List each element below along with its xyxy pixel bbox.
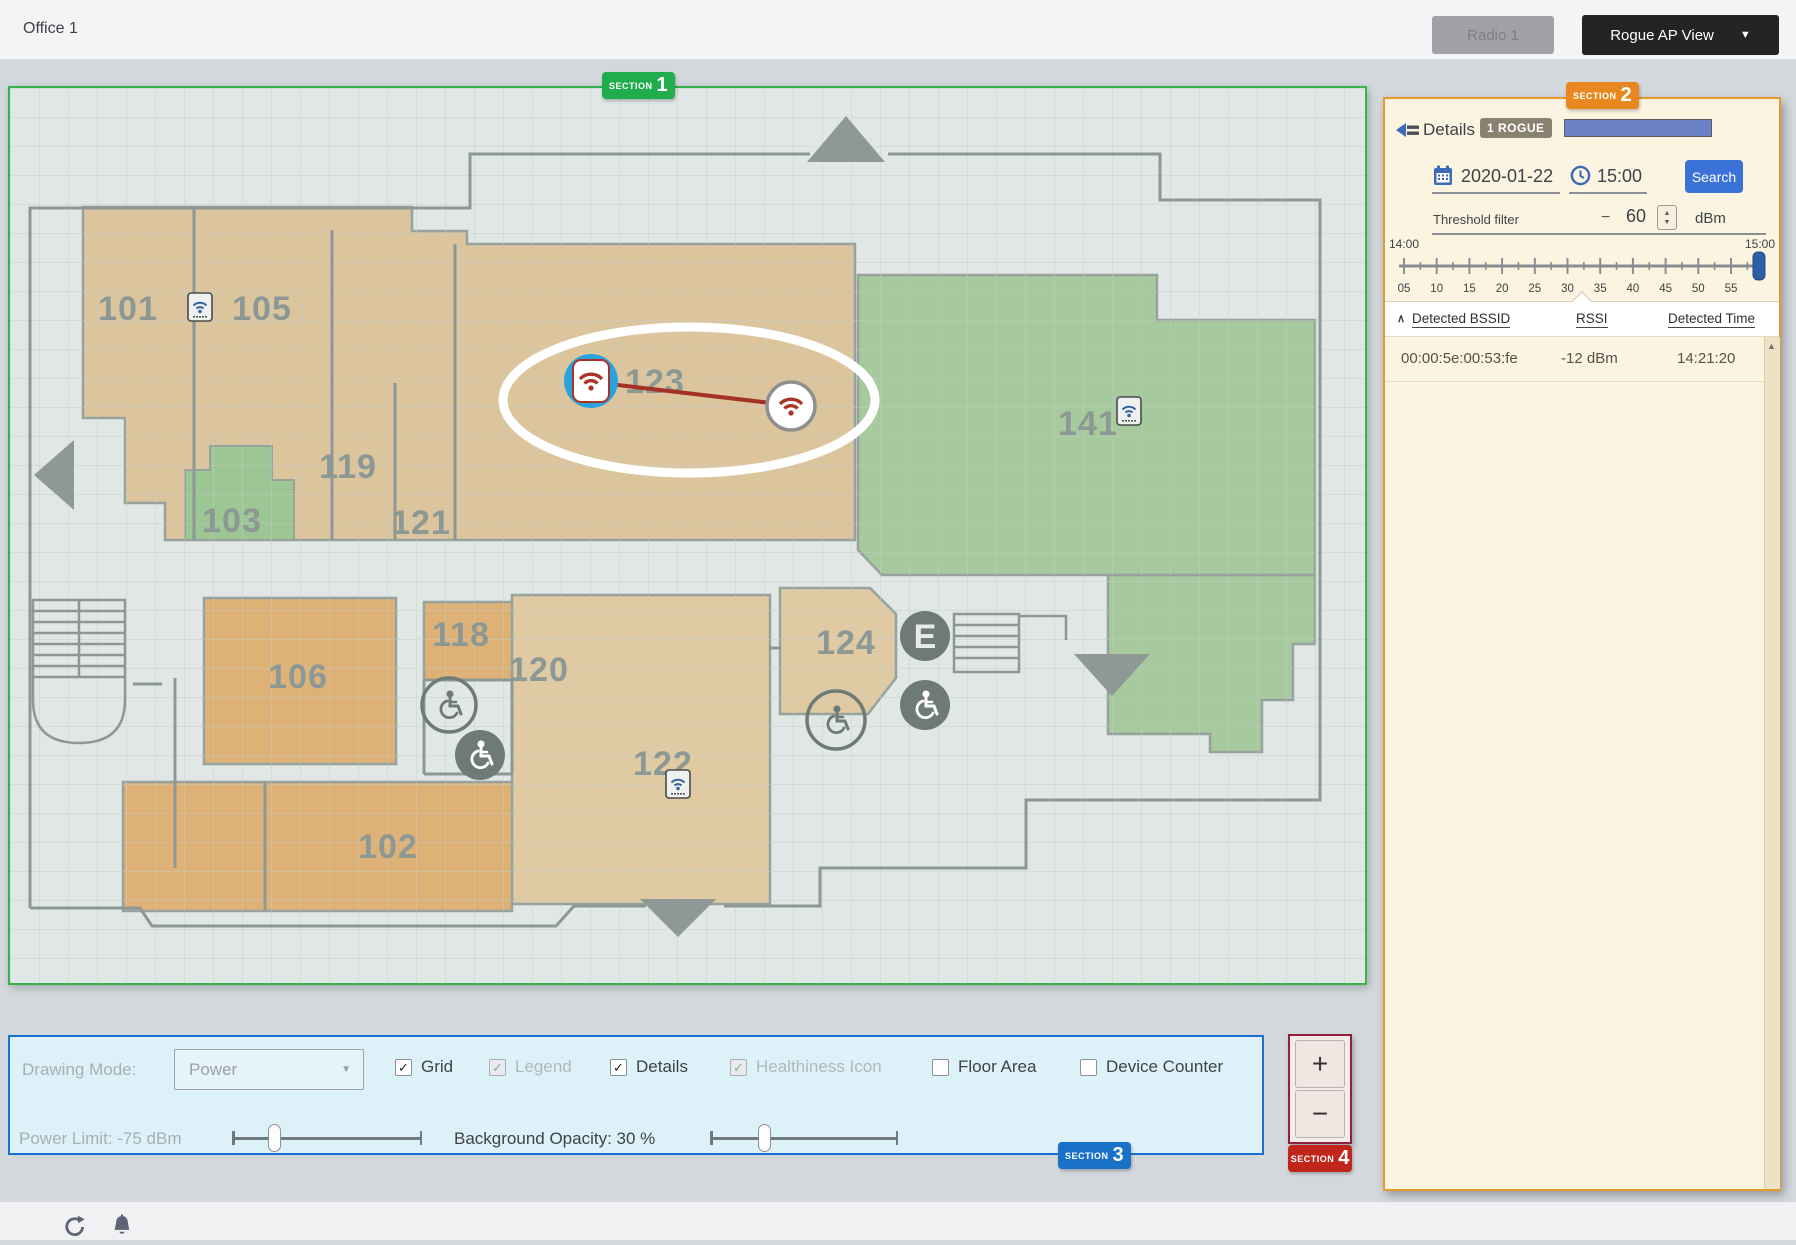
drawing-mode-value: Power: [189, 1060, 237, 1080]
room-label-124: 124: [816, 624, 876, 662]
checkbox-details[interactable]: ✓Details: [610, 1057, 688, 1077]
scroll-up-icon[interactable]: ▲: [1767, 341, 1776, 351]
rssi-cell: -12 dBm: [1561, 350, 1618, 367]
refresh-icon[interactable]: [62, 1214, 88, 1245]
time-field[interactable]: 15:00: [1597, 166, 1642, 187]
room-label-121: 121: [391, 504, 451, 542]
bell-icon[interactable]: [110, 1214, 134, 1245]
checkbox-device-counter[interactable]: Device Counter: [1080, 1057, 1223, 1077]
timeline-tick-label: 05: [1398, 283, 1411, 295]
section-3-badge: SECTION 3: [1058, 1142, 1131, 1169]
timeline-tick-label: 45: [1659, 283, 1672, 295]
view-mode-label: Rogue AP View: [1610, 27, 1714, 44]
checkbox-label: Floor Area: [958, 1057, 1036, 1077]
room-label-123: 123: [625, 363, 685, 401]
checkbox-label: Grid: [421, 1057, 453, 1077]
chevron-down-icon: ▼: [1740, 29, 1751, 41]
checkbox-label: Legend: [515, 1057, 572, 1077]
room-label-119: 119: [319, 448, 377, 486]
details-title: Details: [1423, 120, 1475, 140]
time-cell: 14:21:20: [1677, 350, 1735, 367]
search-button[interactable]: Search: [1685, 160, 1743, 193]
column-detected-bssid[interactable]: Detected BSSID: [1412, 311, 1510, 328]
section-2-badge: SECTION 2: [1566, 82, 1639, 109]
checkbox-box[interactable]: ✓: [730, 1059, 747, 1076]
footer-bar: [0, 1202, 1796, 1240]
background-opacity-label: Background Opacity: 30 %: [454, 1129, 655, 1149]
list-scrollbar[interactable]: ▲: [1764, 337, 1780, 1189]
wheelchair-icon: [900, 680, 950, 730]
rogue-ap-icon[interactable]: [767, 382, 815, 430]
timeline-end-label: 15:00: [1745, 237, 1775, 251]
checkbox-box[interactable]: ✓: [610, 1059, 627, 1076]
zoom-out-button[interactable]: −: [1295, 1090, 1345, 1138]
background-opacity-slider[interactable]: [710, 1130, 898, 1146]
room-label-120: 120: [509, 651, 569, 689]
section-1-badge: SECTION 1: [602, 72, 675, 99]
clock-icon: [1570, 165, 1591, 191]
zoom-in-button[interactable]: +: [1295, 1040, 1345, 1088]
view-mode-dropdown[interactable]: Rogue AP View ▼: [1582, 15, 1779, 55]
table-row[interactable]: 00:00:5e:00:53:fe-12 dBm14:21:20: [1385, 337, 1764, 382]
date-underline: [1432, 192, 1560, 194]
power-limit-label: Power Limit: -75 dBm: [19, 1129, 182, 1149]
checkbox-grid[interactable]: ✓Grid: [395, 1057, 453, 1077]
date-field[interactable]: 2020-01-22: [1461, 166, 1553, 187]
checkbox-label: Details: [636, 1057, 688, 1077]
timeline-tick-label: 30: [1561, 283, 1574, 295]
ap-icon[interactable]: [1117, 397, 1141, 425]
power-limit-slider-handle[interactable]: [268, 1124, 281, 1152]
drawing-mode-select[interactable]: Power ▼: [174, 1049, 364, 1090]
threshold-underline: [1432, 233, 1766, 235]
room-label-106: 106: [268, 658, 328, 696]
svg-text:E: E: [914, 618, 937, 656]
rogue-count-badge: 1 ROGUE: [1480, 118, 1552, 138]
threshold-minus-sign: −: [1601, 209, 1610, 227]
timeline-slider-handle[interactable]: [1753, 252, 1765, 280]
drawing-mode-label: Drawing Mode:: [22, 1060, 136, 1080]
checkbox-healthiness-icon[interactable]: ✓Healthiness Icon: [730, 1057, 882, 1077]
checkbox-box[interactable]: ✓: [489, 1059, 506, 1076]
rogue-ap-list: 00:00:5e:00:53:fe-12 dBm14:21:20: [1385, 337, 1764, 382]
ap-icon[interactable]: [188, 293, 212, 321]
threshold-filter-label: Threshold filter: [1433, 212, 1519, 227]
time-range-slider[interactable]: 14:0015:000510152025303540455055: [1387, 236, 1779, 300]
timeline-tick-label: 25: [1528, 283, 1541, 295]
timeline-tick-label: 55: [1725, 283, 1738, 295]
checkbox-box[interactable]: [1080, 1059, 1097, 1076]
threshold-unit: dBm: [1695, 210, 1726, 227]
rogue-progress-bar: [1564, 119, 1712, 137]
room-label-102: 102: [358, 828, 418, 866]
checkbox-label: Device Counter: [1106, 1057, 1223, 1077]
room-label-101: 101: [98, 290, 158, 328]
column-detected-time[interactable]: Detected Time: [1668, 311, 1755, 328]
bssid-cell: 00:00:5e:00:53:fe: [1401, 350, 1518, 367]
timeline-tick-label: 40: [1627, 283, 1640, 295]
calendar-icon: [1433, 165, 1453, 191]
timeline-tick-label: 50: [1692, 283, 1705, 295]
column-rssi[interactable]: RSSI: [1576, 311, 1608, 328]
timeline-tick-label: 35: [1594, 283, 1607, 295]
room-label-105: 105: [232, 290, 292, 328]
detecting-ap-icon[interactable]: [564, 354, 618, 408]
page-title: Office 1: [23, 20, 78, 38]
wheelchair-icon: [455, 730, 505, 780]
table-header: ∧ Detected BSSID RSSI Detected Time: [1385, 301, 1779, 337]
checkbox-box[interactable]: [932, 1059, 949, 1076]
checkbox-floor-area[interactable]: Floor Area: [932, 1057, 1036, 1077]
floor-plan-svg: E 10110512314111910312111812012410612210…: [10, 88, 1365, 983]
timeline-tick-label: 20: [1496, 283, 1509, 295]
power-limit-slider[interactable]: [232, 1130, 422, 1146]
details-panel: Details 1 ROGUE 2020-01-22 15:00 Search …: [1383, 97, 1781, 1191]
checkbox-box[interactable]: ✓: [395, 1059, 412, 1076]
room-label-103: 103: [202, 502, 262, 540]
room-label-141: 141: [1058, 405, 1118, 443]
checkbox-label: Healthiness Icon: [756, 1057, 882, 1077]
time-underline: [1569, 192, 1647, 194]
chevron-down-icon: ▼: [341, 1064, 351, 1075]
room-label-118: 118: [432, 616, 490, 654]
top-bar: Office 1 Radio 1 Rogue AP View ▼: [0, 0, 1796, 60]
ap-icon[interactable]: [666, 770, 690, 798]
section-4-badge: SECTION 4: [1288, 1145, 1352, 1172]
threshold-stepper[interactable]: ▲▼: [1657, 205, 1677, 230]
radio-button[interactable]: Radio 1: [1432, 16, 1554, 54]
floor-map[interactable]: E 10110512314111910312111812012410612210…: [8, 86, 1367, 985]
checkbox-legend[interactable]: ✓Legend: [489, 1057, 572, 1077]
collapse-arrow-icon[interactable]: [1395, 121, 1421, 144]
timeline-tick-label: 15: [1463, 283, 1476, 295]
drawing-controls-panel: Drawing Mode: Power ▼ ✓Grid✓Legend✓Detai…: [8, 1035, 1264, 1155]
timeline-tick-label: 10: [1430, 283, 1443, 295]
timeline-start-label: 14:00: [1389, 237, 1419, 251]
sort-ascending-icon[interactable]: ∧: [1397, 312, 1405, 325]
background-opacity-slider-handle[interactable]: [758, 1124, 771, 1152]
map-zoom-control: + −: [1288, 1034, 1352, 1144]
threshold-value-input[interactable]: 60: [1626, 206, 1646, 227]
elevator-icon: E: [900, 611, 950, 661]
